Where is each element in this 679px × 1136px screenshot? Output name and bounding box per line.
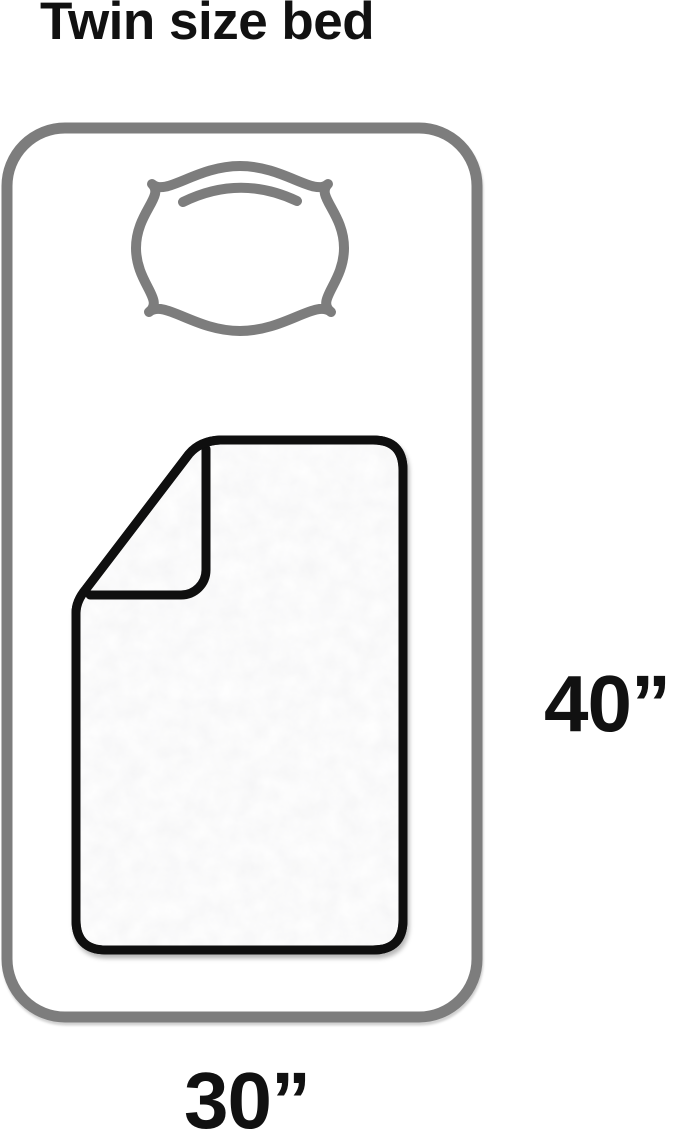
pillow-icon [136, 166, 344, 331]
bed-diagram-canvas [0, 0, 679, 1136]
height-dimension-label: 40” [544, 664, 670, 744]
width-dimension-label: 30” [184, 1061, 310, 1136]
product-dimension-diagram: Twin size bed [0, 0, 679, 1136]
